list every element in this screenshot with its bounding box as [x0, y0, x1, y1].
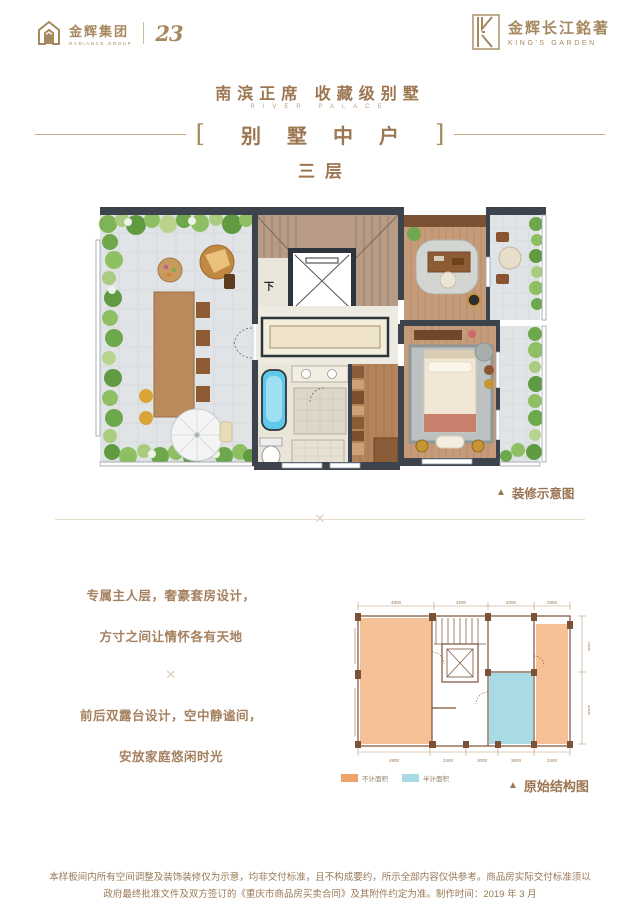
dim-top-4: 3300	[547, 600, 558, 605]
dim-top-2: 4200	[456, 600, 467, 605]
structure-plan-caption-text: 原始结构图	[524, 776, 589, 795]
copy-ornament: ✕	[42, 667, 300, 683]
decorated-floor-plan: 下	[92, 200, 554, 484]
triangle-marker-icon-2: ▲	[508, 780, 518, 791]
unit-title: 别墅中户	[215, 120, 425, 149]
disclaimer-line-1: 本样板间内所有空间调整及装饰装修仅为示意，均非交付标准，且不构成要约，所示全部内…	[20, 869, 620, 886]
legend-label-orange: 不计面积	[362, 773, 388, 783]
legend-item-orange: 不计面积	[341, 773, 388, 783]
radiance-house-icon	[36, 20, 62, 46]
left-logo-name: 金辉集团	[69, 21, 132, 40]
front-terrace-area	[360, 618, 432, 744]
kings-garden-logo: 金辉长江銘著 KING'S GARDEN	[472, 14, 610, 50]
decorated-plan-caption: ▲ 装修示意图	[496, 483, 574, 502]
structure-schematic: 4800 4200 2000 3300 4800 2400 3000 3600 …	[338, 596, 590, 768]
legend-item-blue: 半计面积	[402, 773, 449, 783]
dim-bottom-5: 2400	[547, 758, 558, 763]
legend-swatch-orange	[341, 774, 358, 782]
bracket-close: ]	[425, 120, 454, 148]
radiance-group-logo: 金辉集团 RADIANCE GROUP 23	[36, 20, 183, 46]
triangle-marker-icon: ▲	[496, 487, 506, 498]
dim-bottom-4: 3600	[511, 758, 522, 763]
dim-right-1: 1800	[587, 641, 590, 652]
left-logo-tagline: RADIANCE GROUP	[69, 41, 132, 46]
right-logo-tagline: KING'S GARDEN	[508, 40, 610, 47]
copy-line-4: 安放家庭悠闲时光	[42, 746, 300, 765]
dim-top-1: 4800	[391, 600, 402, 605]
dim-bottom-3: 3000	[477, 758, 488, 763]
legend-label-blue: 半计面积	[423, 773, 449, 783]
stairs-down-label: 下	[264, 281, 274, 293]
anniversary-badge: 23	[155, 21, 182, 46]
copy-line-2: 方寸之间让情怀各有天地	[42, 626, 300, 645]
disclaimer-line-2: 政府最终批准文件及双方签订的《重庆市商品房买卖合同》及其附件约定为准。制作时间：…	[20, 886, 620, 903]
copy-line-1: 专属主人层，奢豪套房设计，	[42, 585, 300, 604]
schematic-legend: 不计面积 半计面积	[341, 773, 449, 783]
rear-terrace-area	[536, 624, 568, 744]
brochure-page: 金辉集团 RADIANCE GROUP 23 金辉长江銘著 KING'S GAR…	[0, 0, 640, 920]
kings-garden-icon	[472, 14, 500, 50]
floor-label: 三层	[0, 157, 640, 182]
dim-right-2: 4500	[587, 705, 590, 716]
rule-right	[454, 134, 605, 135]
dim-bottom-1: 4800	[389, 758, 400, 763]
decorated-plan-caption-text: 装修示意图	[512, 483, 575, 502]
page-title: 南滨正席 收藏级别墅	[0, 80, 640, 104]
dim-top-3: 2000	[506, 600, 517, 605]
schematic-stairs	[434, 618, 486, 682]
rule-left	[35, 134, 186, 135]
gift-area	[489, 673, 533, 744]
marketing-copy: 专属主人层，奢豪套房设计， 方寸之间让情怀各有天地 ✕ 前后双露台设计，空中静谧…	[42, 585, 300, 787]
page-title-en: RIVER PALACE	[0, 104, 640, 110]
dim-bottom-2: 2400	[443, 758, 454, 763]
structure-plan-caption: ▲ 原始结构图	[508, 776, 589, 795]
logo-divider	[143, 22, 144, 44]
right-logo-name: 金辉长江銘著	[508, 17, 610, 38]
divider-ornament: ✕	[0, 511, 640, 527]
legend-swatch-blue	[402, 774, 419, 782]
unit-title-row: [ 别墅中户 ]	[35, 122, 605, 146]
copy-line-3: 前后双露台设计，空中静谧间，	[42, 705, 300, 724]
disclaimer: 本样板间内所有空间调整及装饰装修仅为示意，均非交付标准，且不构成要约，所示全部内…	[20, 869, 620, 903]
bracket-open: [	[186, 120, 215, 148]
